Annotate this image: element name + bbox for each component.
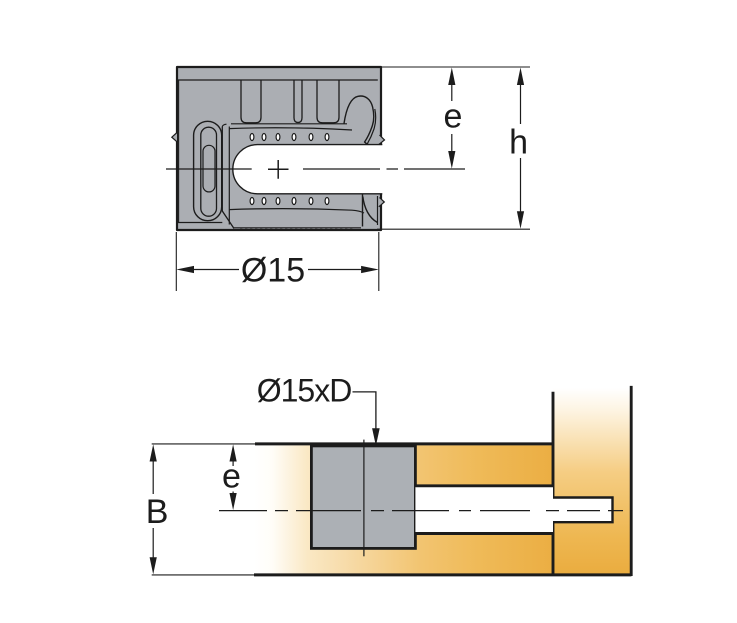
svg-text:Ø15xD: Ø15xD [257,373,352,409]
svg-text:e: e [222,458,241,496]
svg-text:h: h [509,124,528,162]
svg-text:e: e [444,98,463,136]
svg-text:Ø15: Ø15 [241,252,305,290]
svg-text:B: B [146,493,169,531]
